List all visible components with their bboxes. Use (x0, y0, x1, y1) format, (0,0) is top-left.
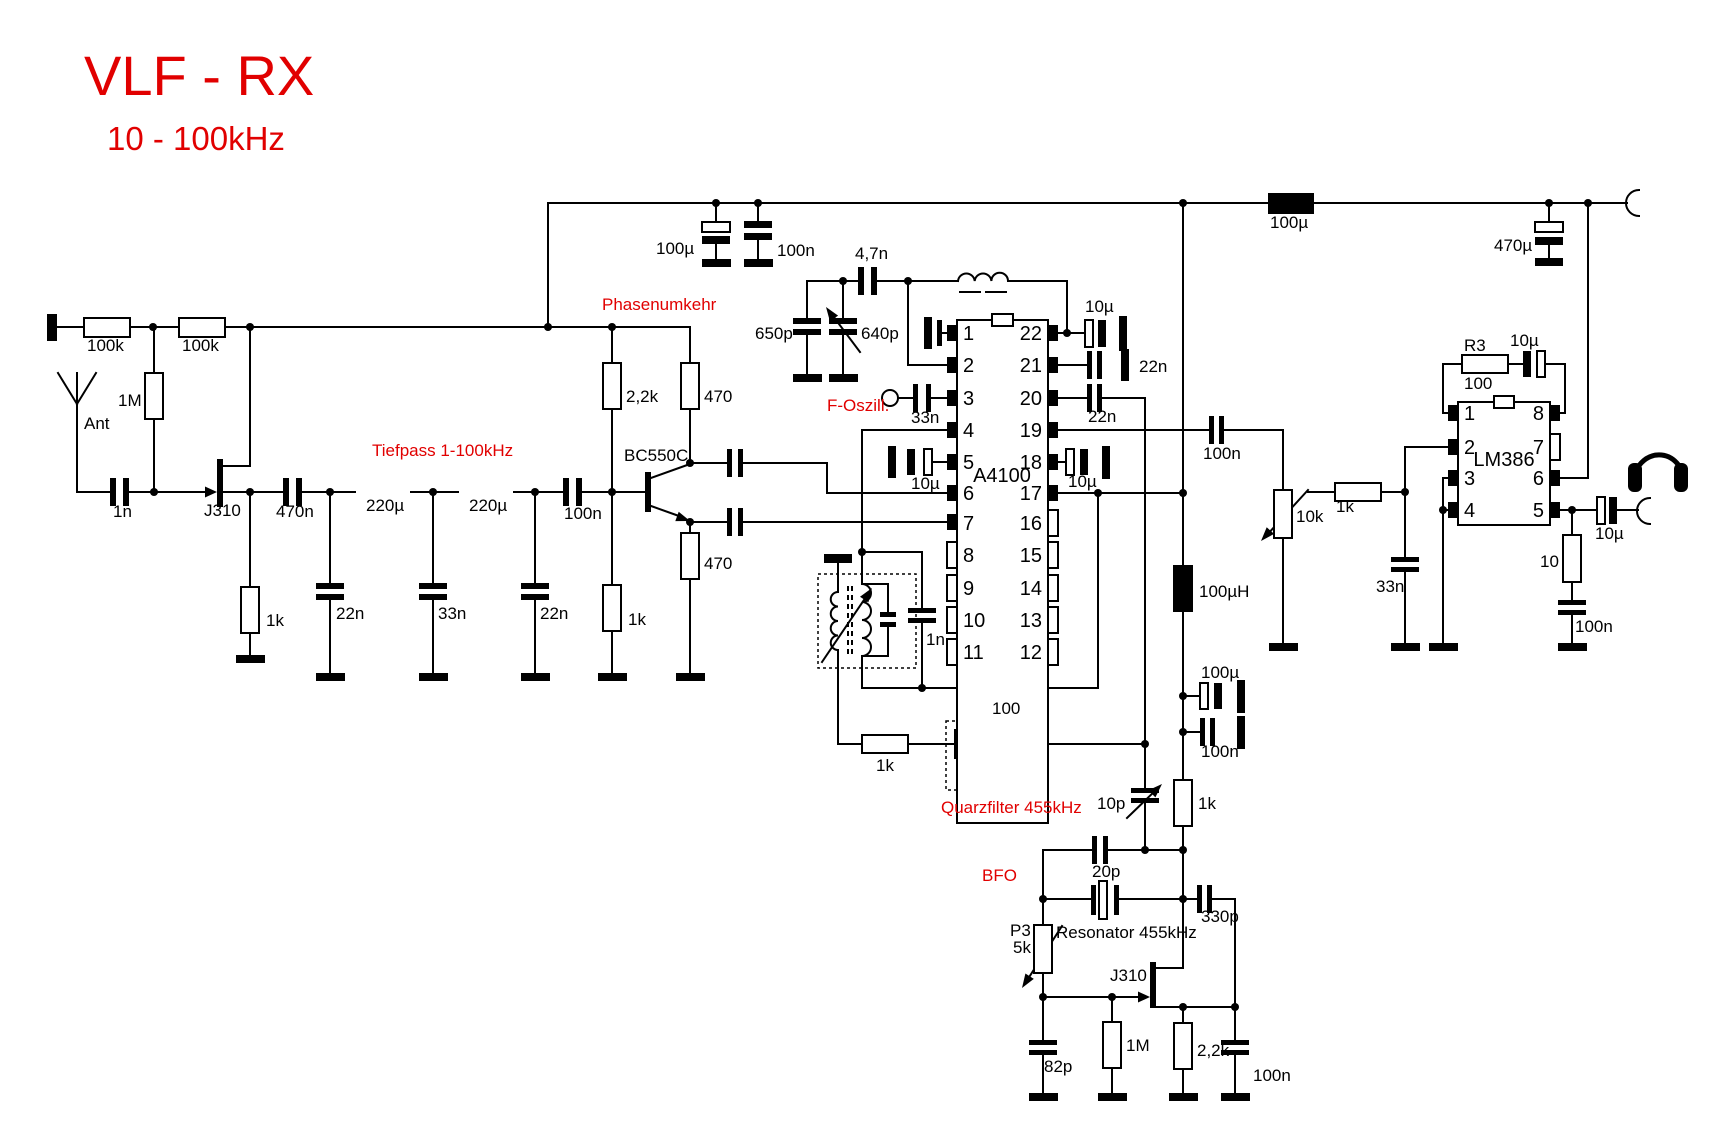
ground-icon (793, 374, 822, 382)
cap-100n-coupling (563, 478, 582, 506)
label-r1k-phase: 1k (628, 610, 646, 629)
lm386-pin-8: 8 (1533, 403, 1544, 425)
label-c100n-decouple: 100n (1201, 742, 1239, 761)
ground-icon (419, 673, 448, 681)
label-r1m-input: 1M (118, 391, 142, 410)
label-tiefpass: Tiefpass 1-100kHz (372, 441, 513, 460)
label-c22n-pin21: 22n (1139, 357, 1167, 376)
a4100-pin-2: 2 (963, 355, 974, 377)
label-c4n7: 4,7n (855, 244, 888, 263)
ground-icon (598, 673, 627, 681)
cap-22n-lp2 (521, 583, 549, 600)
label-r2k2-phase: 2,2k (626, 387, 659, 406)
label-c1n-detector: 1n (926, 630, 945, 649)
headphones-icon (1628, 455, 1688, 492)
label-c470n: 470n (276, 502, 314, 521)
cap-10u-feedback (1523, 351, 1545, 377)
ground-icon (1098, 1093, 1127, 1101)
resistor-100k-1 (84, 318, 130, 337)
bjt-bc550c-emitter-arrow (675, 512, 690, 521)
lm386-pin-7: 7 (1533, 437, 1544, 459)
ground-icon (1119, 316, 1127, 351)
resistor-1k-bfo (1174, 780, 1192, 826)
potentiometer-p3-5k (1034, 925, 1052, 973)
a4100-pin-21: 21 (1020, 355, 1042, 377)
label-j310-rf: J310 (204, 501, 241, 520)
ground-icon (1429, 643, 1458, 651)
label-r470-collector: 470 (704, 387, 732, 406)
potentiometer-10k (1274, 490, 1292, 538)
cap-transformer-internal (880, 612, 896, 627)
resistor-470-collector (681, 363, 699, 409)
cap-22n-pin21 (1087, 351, 1102, 379)
cap-pin1 (937, 320, 942, 346)
section-labels: Tiefpass 1-100kHz Phasenumkehr F-Oszill.… (372, 295, 1197, 942)
label-quarzfilter: Quarzfilter 455kHz (941, 798, 1082, 817)
lm386-pin-5: 5 (1533, 500, 1544, 522)
label-p3-value: 5k (1013, 938, 1031, 957)
a4100-pin-15: 15 (1020, 545, 1042, 567)
a4100-pin-20: 20 (1020, 388, 1042, 410)
label-c33n-af: 33n (1376, 577, 1404, 596)
label-c100n-output: 100n (1575, 617, 1613, 636)
cap-33n-af (1391, 557, 1419, 572)
cap-100u-supply (702, 222, 730, 244)
junction-dots (149, 199, 1592, 1011)
label-c33n-osc: 33n (911, 408, 939, 427)
lm386-pin-2: 2 (1464, 437, 1475, 459)
ground-icon (1102, 446, 1110, 479)
connectors (47, 190, 1688, 524)
resistor-1m-input (145, 373, 163, 419)
label-r3-value: 100 (1464, 374, 1492, 393)
cap-100n-emitter (727, 508, 743, 536)
pot-p3-arrow-icon (1022, 974, 1034, 989)
resistor-1k-phase (603, 585, 621, 631)
ground-icon (1535, 258, 1563, 266)
label-c100n-bfo: 100n (1253, 1066, 1291, 1085)
a4100-pin-3: 3 (963, 388, 974, 410)
label-c100n-coupling: 100n (564, 504, 602, 523)
label-c22n-lp2: 22n (540, 604, 568, 623)
label-r1k-source: 1k (266, 611, 284, 630)
label-c100u-supply: 100µ (656, 239, 694, 258)
label-c100n-pin19: 100n (1203, 444, 1241, 463)
ground-icon (824, 554, 852, 563)
page-title: VLF - RX (84, 44, 314, 107)
cap-1n-detector (908, 608, 936, 623)
a4100-pin-13: 13 (1020, 610, 1042, 632)
cap-100n-collector (727, 449, 743, 477)
ground-symbols (236, 258, 1587, 1101)
label-j310-bfo: J310 (1110, 966, 1147, 985)
a4100-pin-5: 5 (963, 452, 974, 474)
resistor-r3 (1462, 355, 1508, 373)
cap-82p (1029, 1040, 1057, 1055)
jfet-j310-rf-bar (217, 459, 223, 507)
label-choke-100u: 100µ (1270, 213, 1308, 232)
a4100-pin-7: 7 (963, 513, 974, 535)
label-pot10k: 10k (1296, 507, 1324, 526)
label-c33n-lp: 33n (438, 604, 466, 623)
label-c22n-pin20: 22n (1088, 407, 1116, 426)
cap-650p (793, 318, 821, 335)
resistor-10-zobel (1563, 535, 1581, 582)
cap-640p-variable (829, 318, 857, 335)
ground-icon (1269, 643, 1298, 651)
label-r1k-quartz: 1k (876, 756, 894, 775)
a4100-pin-8: 8 (963, 545, 974, 567)
lm386-pin-4: 4 (1464, 500, 1475, 522)
a4100-pin-1: 1 (963, 323, 974, 345)
label-c10u-pin5: 10µ (911, 474, 940, 493)
cap-100u-decouple (1200, 683, 1222, 709)
label-r100k-1: 100k (87, 336, 124, 355)
a4100-pin-12: 12 (1020, 642, 1042, 664)
label-c330p: 330p (1201, 907, 1239, 926)
label-c10u-pin22: 10µ (1085, 297, 1114, 316)
label-c1n-input: 1n (113, 502, 132, 521)
jfet-j310-rf-gate-arrow (205, 487, 217, 498)
label-l220u-2: 220µ (469, 496, 507, 515)
label-c20p: 20p (1092, 862, 1120, 881)
ground-icon (924, 317, 932, 349)
ground-icon (1121, 349, 1129, 381)
choke-100u-rail (1268, 193, 1314, 214)
ground-icon (1391, 643, 1420, 651)
lm386-pin-3: 3 (1464, 468, 1475, 490)
resistor-100k-2 (179, 318, 225, 337)
resistor-1k-source (241, 587, 259, 633)
label-c10u-output: 10µ (1595, 524, 1624, 543)
ground-icon (1029, 1093, 1058, 1101)
ground-icon (888, 446, 896, 478)
label-c100u-decouple: 100µ (1201, 663, 1239, 682)
cap-10u-pin5 (907, 449, 932, 475)
label-bfo: BFO (982, 866, 1017, 885)
a4100-pin-6: 6 (963, 483, 974, 505)
label-r100-detector: 100 (992, 699, 1020, 718)
resistor-2k2-bfo (1174, 1023, 1192, 1069)
label-r1k-bfo: 1k (1198, 794, 1216, 813)
cap-100n-output (1558, 600, 1586, 615)
transformer-arrow-icon (860, 588, 872, 602)
ground-icon (702, 259, 731, 267)
label-r470-emitter: 470 (704, 554, 732, 573)
page-subtitle: 10 - 100kHz (107, 120, 285, 157)
label-choke-100uh: 100µH (1199, 582, 1249, 601)
cap-10u-pin22 (1085, 320, 1106, 347)
label-phasenumkehr: Phasenumkehr (602, 295, 717, 314)
label-c640p: 640p (861, 324, 899, 343)
resistor-1k-quartz (862, 735, 908, 753)
a4100-pin-4: 4 (963, 420, 974, 442)
jfet-j310-bfo-bar (1150, 962, 1156, 1008)
a4100-pin-11: 11 (963, 642, 984, 664)
label-r2k2-bfo: 2,2k (1197, 1041, 1230, 1060)
label-c22n-lp1: 22n (336, 604, 364, 623)
label-resonator: Resonator 455kHz (1056, 923, 1197, 942)
antenna-jack-icon (47, 314, 57, 341)
a4100-pin-14: 14 (1020, 578, 1042, 600)
ground-icon (676, 673, 705, 681)
cap-100n-pin19 (1209, 416, 1224, 444)
label-r1k-af: 1k (1336, 497, 1354, 516)
label-c10u-pin18: 10µ (1068, 472, 1097, 491)
ground-icon (1558, 643, 1587, 651)
label-c470u: 470µ (1494, 236, 1532, 255)
lm386-pin-1: 1 (1464, 403, 1475, 425)
label-c100n-supply: 100n (777, 241, 815, 260)
label-r100k-2: 100k (182, 336, 219, 355)
a4100-pin-10: 10 (963, 610, 985, 632)
cap-10u-output (1597, 497, 1617, 524)
resistor-470-emitter (681, 533, 699, 579)
a4100-pin-9: 9 (963, 578, 974, 600)
cap-33n-lp (419, 583, 447, 600)
cap-22n-lp1 (316, 583, 344, 600)
cap-4n7 (858, 267, 877, 295)
ground-icon (829, 374, 858, 382)
label-r10-zobel: 10 (1540, 552, 1559, 571)
label-c10u-feedback: 10µ (1510, 331, 1539, 350)
label-c82p: 82p (1044, 1057, 1072, 1076)
ic-a4100: A4100 1 2 3 4 5 6 7 8 9 10 11 22 21 20 1… (947, 314, 1058, 823)
label-c650p: 650p (755, 324, 793, 343)
resistor-2k2-phase (603, 363, 621, 409)
title-block: VLF - RX 10 - 100kHz (84, 44, 314, 157)
cap-100n-supply (744, 221, 772, 240)
cap-470u (1535, 222, 1563, 245)
jfet-j310-bfo-gate-arrow (1138, 992, 1150, 1003)
label-r1m-bfo: 1M (1126, 1036, 1150, 1055)
ic-lm386-label: LM386 (1473, 449, 1534, 471)
a4100-pin-16: 16 (1020, 513, 1042, 535)
schematic-page: VLF - RX 10 - 100kHz (0, 0, 1728, 1147)
label-r3-name: R3 (1464, 336, 1486, 355)
a4100-pin-17: 17 (1020, 483, 1042, 505)
ground-icon (1237, 680, 1245, 713)
resistor-1m-bfo (1103, 1022, 1121, 1068)
ground-icon (316, 673, 345, 681)
ground-icon (521, 673, 550, 681)
ground-icon (236, 655, 265, 663)
label-ant: Ant (84, 414, 110, 433)
cap-20p (1092, 836, 1108, 864)
ceramic-resonator-455khz (1091, 881, 1119, 919)
ground-icon (1221, 1093, 1250, 1101)
a4100-pin-22: 22 (1020, 323, 1042, 345)
choke-100uh (1173, 565, 1193, 612)
lm386-pin-6: 6 (1533, 468, 1544, 490)
label-l220u-1: 220µ (366, 496, 404, 515)
a4100-pin-19: 19 (1020, 420, 1042, 442)
a4100-pin-18: 18 (1020, 452, 1042, 474)
label-bc550c: BC550C (624, 446, 688, 465)
ic-lm386: LM386 1 2 3 4 8 7 6 5 (1448, 396, 1560, 525)
label-c10p: 10p (1097, 794, 1125, 813)
bjt-bc550c-bar (645, 472, 651, 512)
ic-lm386-notch (1494, 396, 1514, 408)
ground-icon (744, 259, 773, 267)
vlf-rx-schematic: VLF - RX 10 - 100kHz (0, 0, 1728, 1147)
resistors (84, 193, 1581, 1069)
label-f-oszill: F-Oszill. (827, 396, 889, 415)
ic-a4100-notch (992, 314, 1013, 326)
ground-icon (1169, 1093, 1198, 1101)
